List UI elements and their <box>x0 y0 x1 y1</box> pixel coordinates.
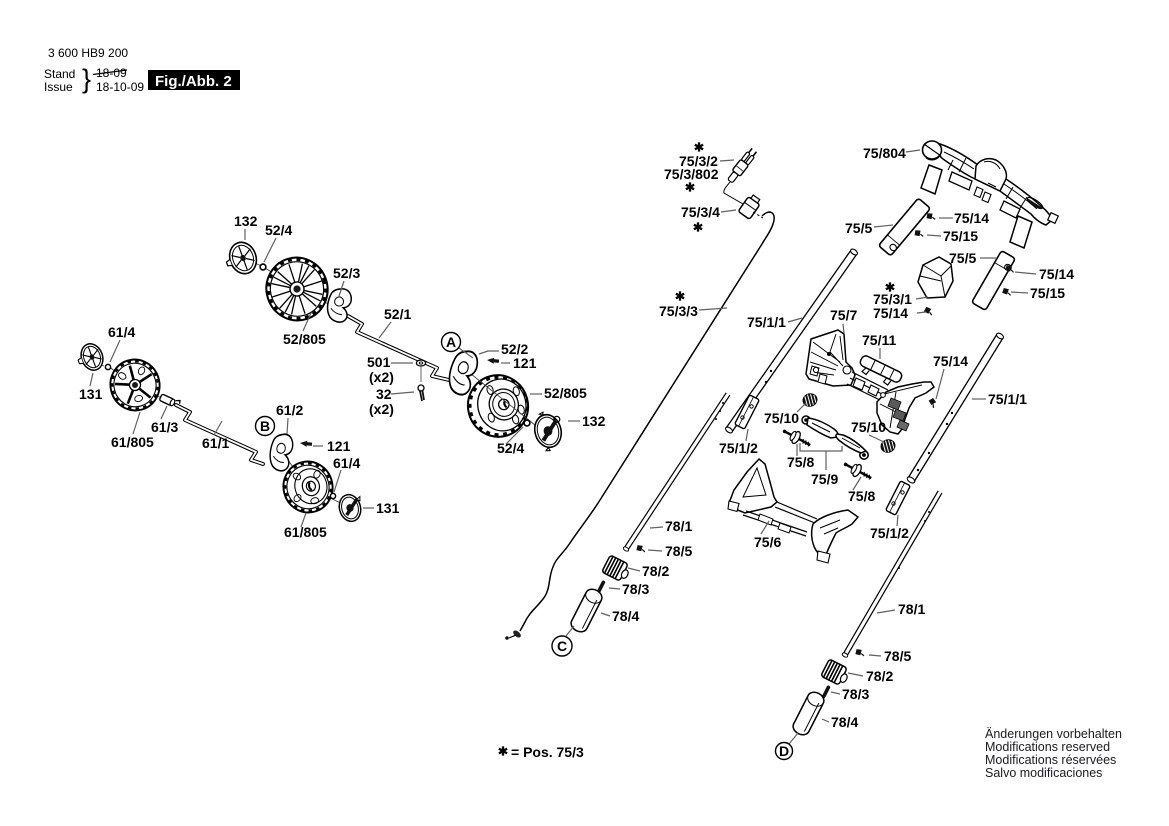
svg-text:75/9: 75/9 <box>811 471 838 487</box>
svg-text:75/14: 75/14 <box>954 210 989 226</box>
svg-text:75/7: 75/7 <box>830 307 857 323</box>
svg-text:75/1/2: 75/1/2 <box>719 440 758 456</box>
svg-text:78/2: 78/2 <box>642 563 669 579</box>
svg-text:75/5: 75/5 <box>949 250 976 266</box>
svg-text:32: 32 <box>376 386 392 402</box>
svg-text:61/2: 61/2 <box>276 402 303 418</box>
svg-text:Issue: Issue <box>44 80 73 94</box>
svg-text:18-10-09: 18-10-09 <box>96 80 144 94</box>
svg-text:75/8: 75/8 <box>787 454 814 470</box>
svg-text:75/6: 75/6 <box>754 534 781 550</box>
svg-text:131: 131 <box>376 500 400 516</box>
svg-text:121: 121 <box>327 438 351 454</box>
svg-text:78/2: 78/2 <box>866 668 893 684</box>
svg-text:(x2): (x2) <box>369 401 394 417</box>
svg-text:75/1/1: 75/1/1 <box>988 391 1027 407</box>
svg-text:61/4: 61/4 <box>108 324 135 340</box>
svg-text:75/3/802: 75/3/802 <box>664 166 719 182</box>
svg-text:121: 121 <box>513 355 537 371</box>
svg-text:75/11: 75/11 <box>862 332 896 348</box>
svg-text:B: B <box>260 418 270 434</box>
svg-text:C: C <box>557 638 567 654</box>
svg-text:78/5: 78/5 <box>665 543 692 559</box>
svg-text:75/1/2: 75/1/2 <box>870 525 909 541</box>
svg-text:131: 131 <box>79 386 103 402</box>
svg-text:78/5: 78/5 <box>884 648 911 664</box>
svg-text:52/1: 52/1 <box>384 306 411 322</box>
svg-text:75/15: 75/15 <box>1030 285 1065 301</box>
svg-text:132: 132 <box>582 413 606 429</box>
svg-text:501: 501 <box>367 354 391 370</box>
svg-text:}: } <box>82 64 91 94</box>
svg-text:78/1: 78/1 <box>665 518 692 534</box>
svg-text:75/14: 75/14 <box>933 353 968 369</box>
svg-text:Salvo modificaciones: Salvo modificaciones <box>985 766 1102 780</box>
svg-text:61/805: 61/805 <box>111 434 154 450</box>
svg-text:61/4: 61/4 <box>333 455 360 471</box>
svg-text:52/3: 52/3 <box>333 265 360 281</box>
svg-text:52/805: 52/805 <box>544 385 587 401</box>
svg-text:78/3: 78/3 <box>622 581 649 597</box>
svg-text:61/1: 61/1 <box>202 435 229 451</box>
svg-text:= Pos. 75/3: = Pos. 75/3 <box>511 744 584 760</box>
svg-text:75/15: 75/15 <box>943 228 978 244</box>
svg-text:Stand: Stand <box>44 67 75 81</box>
svg-text:52/805: 52/805 <box>283 331 326 347</box>
svg-text:52/4: 52/4 <box>497 440 524 456</box>
svg-text:52/4: 52/4 <box>265 222 292 238</box>
svg-text:78/4: 78/4 <box>612 608 639 624</box>
svg-text:61/3: 61/3 <box>151 419 178 435</box>
svg-text:75/8: 75/8 <box>848 488 875 504</box>
svg-text:3 600 HB9 200: 3 600 HB9 200 <box>48 46 128 60</box>
svg-text:78/4: 78/4 <box>831 714 858 730</box>
svg-text:75/804: 75/804 <box>863 145 906 161</box>
svg-text:(x2): (x2) <box>369 369 394 385</box>
svg-text:75/14: 75/14 <box>1039 266 1074 282</box>
svg-text:75/10: 75/10 <box>764 410 799 426</box>
svg-text:D: D <box>779 743 789 759</box>
svg-text:75/10: 75/10 <box>851 419 886 435</box>
svg-text:75/14: 75/14 <box>873 305 908 321</box>
svg-text:75/5: 75/5 <box>845 220 872 236</box>
svg-text:132: 132 <box>234 213 258 229</box>
svg-text:75/3/4: 75/3/4 <box>681 204 720 220</box>
svg-text:Änderungen vorbehalten: Änderungen vorbehalten <box>985 727 1122 741</box>
svg-text:75/3/3: 75/3/3 <box>659 303 698 319</box>
svg-text:78/3: 78/3 <box>842 686 869 702</box>
svg-text:A: A <box>446 334 456 350</box>
svg-text:Modifications réservées: Modifications réservées <box>985 753 1116 767</box>
svg-text:Fig./Abb. 2: Fig./Abb. 2 <box>155 73 232 90</box>
svg-text:Modifications reserved: Modifications reserved <box>985 740 1110 754</box>
svg-text:78/1: 78/1 <box>898 601 925 617</box>
svg-text:75/1/1: 75/1/1 <box>747 314 786 330</box>
svg-text:61/805: 61/805 <box>284 524 327 540</box>
